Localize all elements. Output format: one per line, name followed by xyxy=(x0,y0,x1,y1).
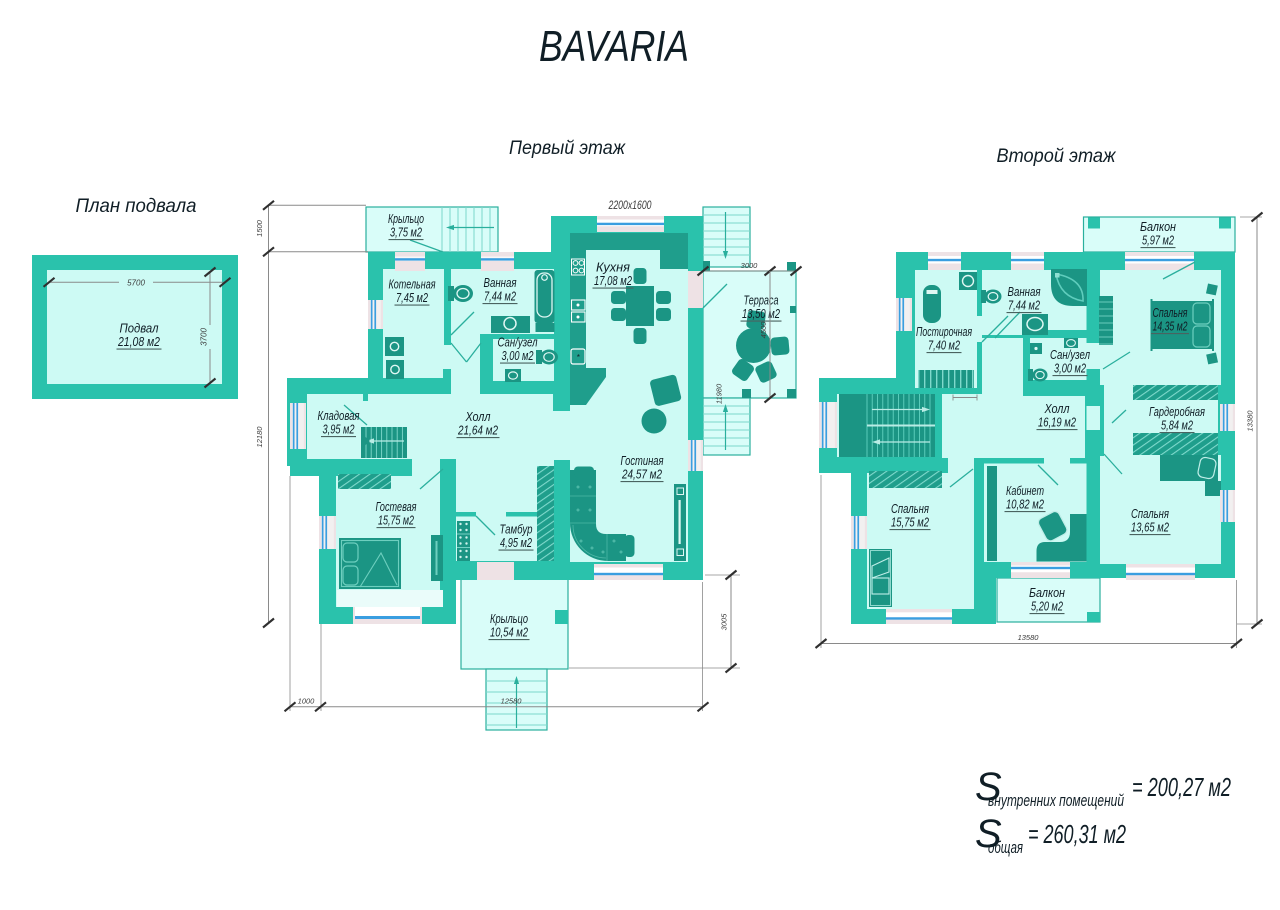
svg-text:16,19 м2: 16,19 м2 xyxy=(1038,415,1077,430)
svg-text:3,00 м2: 3,00 м2 xyxy=(502,348,535,363)
svg-text:= 260,31 м2: = 260,31 м2 xyxy=(1028,819,1126,849)
svg-text:1000: 1000 xyxy=(298,697,316,706)
svg-text:13380: 13380 xyxy=(1246,410,1255,432)
svg-text:7,45 м2: 7,45 м2 xyxy=(396,290,429,305)
svg-text:7,44 м2: 7,44 м2 xyxy=(1008,298,1041,313)
svg-text:10,82 м2: 10,82 м2 xyxy=(1006,497,1045,512)
svg-text:= 200,27 м2: = 200,27 м2 xyxy=(1132,772,1231,802)
svg-text:17,08 м2: 17,08 м2 xyxy=(594,273,633,288)
svg-text:3,95 м2: 3,95 м2 xyxy=(323,422,356,437)
svg-text:5,97 м2: 5,97 м2 xyxy=(1142,233,1175,248)
svg-text:внутренних помещений: внутренних помещений xyxy=(988,792,1124,810)
svg-text:5700: 5700 xyxy=(127,278,145,287)
svg-text:BAVARIA: BAVARIA xyxy=(539,22,689,71)
svg-text:14,35 м2: 14,35 м2 xyxy=(1153,319,1189,334)
svg-text:13580: 13580 xyxy=(1018,633,1040,642)
svg-text:3,00 м2: 3,00 м2 xyxy=(1054,361,1087,376)
svg-text:2200x1600: 2200x1600 xyxy=(608,198,652,212)
svg-text:1500: 1500 xyxy=(255,219,264,237)
svg-text:24,57 м2: 24,57 м2 xyxy=(621,467,662,482)
svg-text:3005: 3005 xyxy=(720,613,729,631)
svg-text:общая: общая xyxy=(988,839,1023,857)
svg-text:21,64 м2: 21,64 м2 xyxy=(457,423,498,438)
svg-text:12580: 12580 xyxy=(501,697,523,706)
svg-text:13,50 м2: 13,50 м2 xyxy=(742,306,781,321)
svg-text:4500: 4500 xyxy=(759,321,768,339)
svg-text:4,95 м2: 4,95 м2 xyxy=(500,535,533,550)
svg-text:15,75 м2: 15,75 м2 xyxy=(378,513,415,528)
svg-text:7,44 м2: 7,44 м2 xyxy=(484,289,517,304)
svg-text:12180: 12180 xyxy=(255,426,264,448)
svg-text:7,40 м2: 7,40 м2 xyxy=(928,338,961,353)
svg-text:21,08 м2: 21,08 м2 xyxy=(117,334,160,349)
svg-text:Первый этаж: Первый этаж xyxy=(509,137,626,159)
svg-text:13,65 м2: 13,65 м2 xyxy=(1131,520,1170,535)
svg-text:План подвала: План подвала xyxy=(76,195,197,217)
svg-text:5,20 м2: 5,20 м2 xyxy=(1031,599,1064,614)
svg-text:3000: 3000 xyxy=(741,261,759,270)
svg-text:15,75 м2: 15,75 м2 xyxy=(891,515,930,530)
svg-text:Второй этаж: Второй этаж xyxy=(997,145,1117,167)
svg-text:3,75 м2: 3,75 м2 xyxy=(390,225,423,240)
svg-text:10,54 м2: 10,54 м2 xyxy=(490,625,529,640)
svg-text:11980: 11980 xyxy=(715,383,724,404)
svg-text:5,84 м2: 5,84 м2 xyxy=(1161,418,1194,433)
svg-text:3700: 3700 xyxy=(200,328,209,346)
